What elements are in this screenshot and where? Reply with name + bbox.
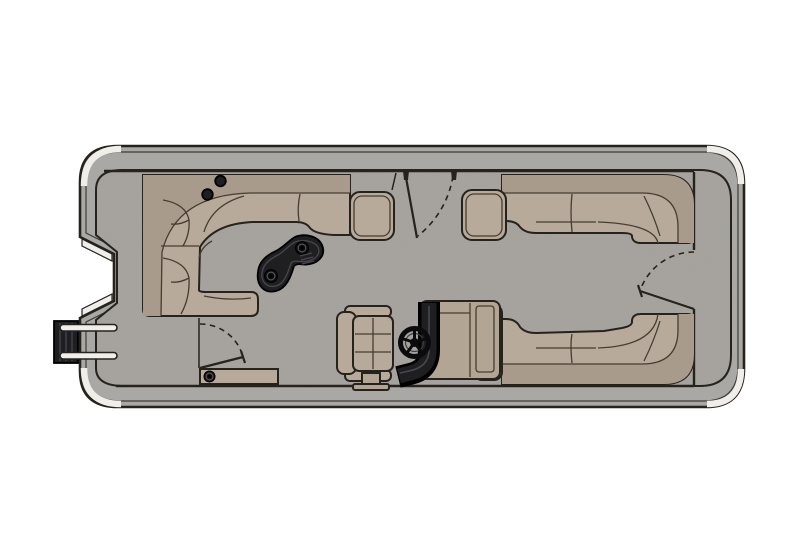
- starboard-lounge-armrest: [462, 190, 506, 240]
- pontoon-floorplan-illustration: Pontoon Boat Floor Plan: [0, 0, 800, 533]
- cupholder-icon: [202, 189, 213, 200]
- floorplan-canvas: Pontoon Boat Floor Plan: [0, 0, 800, 533]
- bow-lounge-armrest: [350, 192, 394, 240]
- ladder-rail-lower: [60, 353, 117, 360]
- cupholder-icon: [215, 176, 226, 187]
- table-cupholder: [265, 270, 278, 283]
- step-cupholder-center: [208, 375, 211, 378]
- ladder-rail-upper: [60, 325, 117, 332]
- table-cupholder: [296, 242, 309, 255]
- captains-chair: [337, 306, 393, 390]
- boarding-step: [200, 369, 278, 384]
